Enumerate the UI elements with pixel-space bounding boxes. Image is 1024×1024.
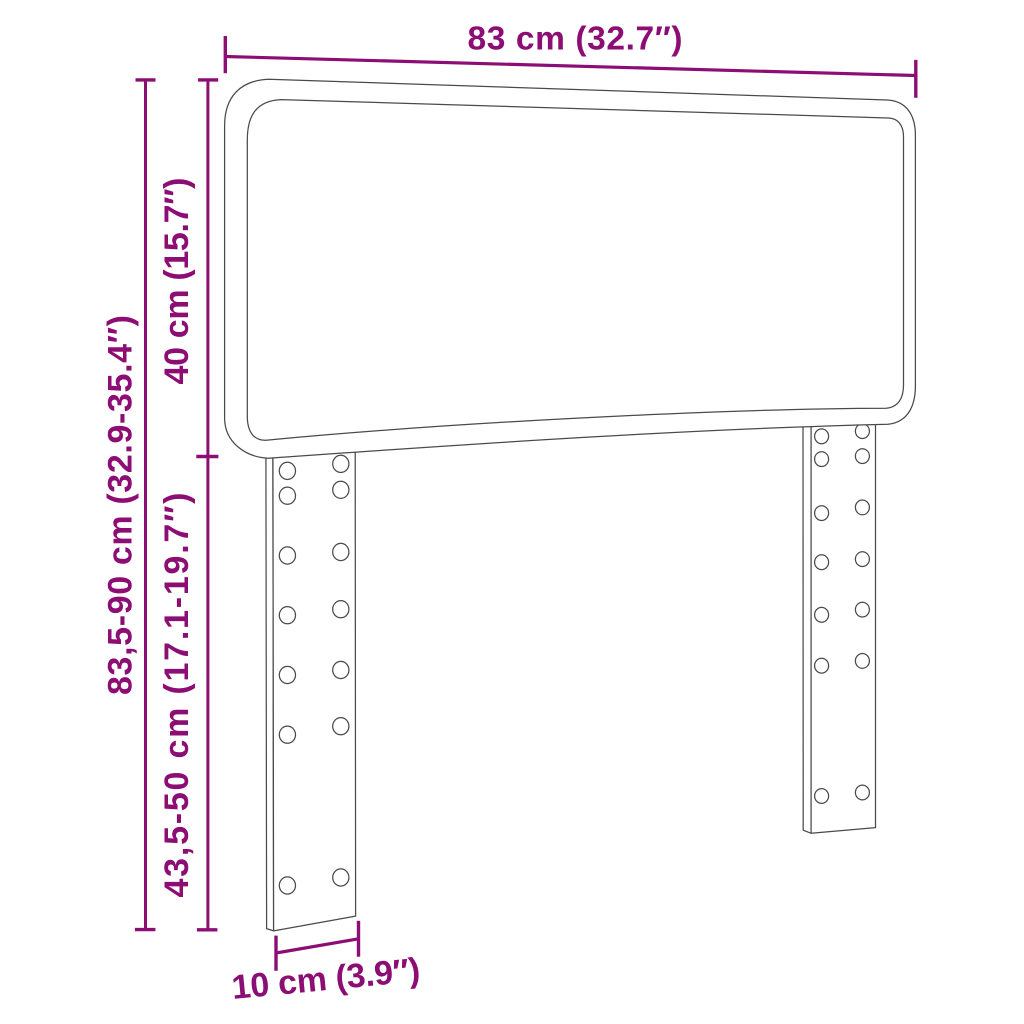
svg-text:43,5-50 cm (17.1-19.7″): 43,5-50 cm (17.1-19.7″)	[158, 493, 196, 898]
svg-text:40 cm (15.7″): 40 cm (15.7″)	[158, 178, 196, 385]
svg-text:83,5-90 cm (32.9-35.4″): 83,5-90 cm (32.9-35.4″)	[102, 315, 140, 695]
svg-text:83 cm (32.7″): 83 cm (32.7″)	[468, 20, 683, 57]
